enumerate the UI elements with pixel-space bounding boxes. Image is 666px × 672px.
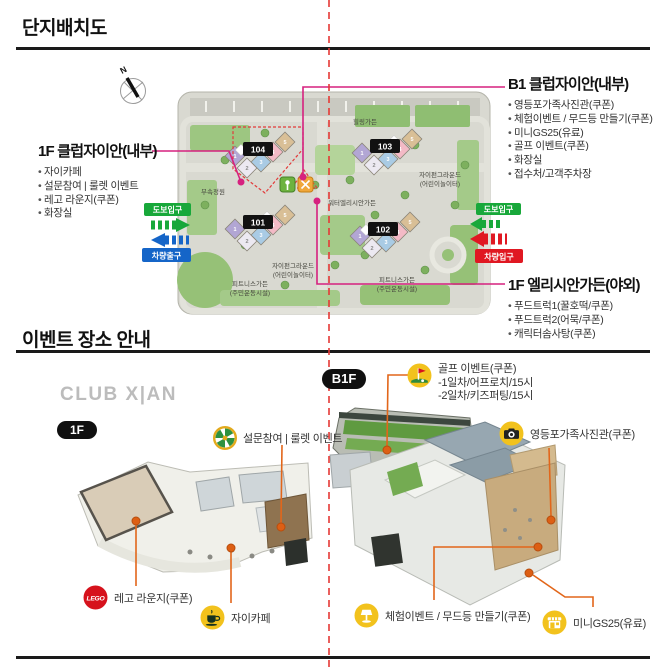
list-item: 화장실 [38,207,157,221]
golf-event-detail-2: -2일차/키즈퍼팅/15시 [438,390,533,404]
callout-1f-elysian-garden: 1F 엘리시안가든(야외) 푸드트럭1(꿀호떡/쿠폰) 푸드트럭2(어묵/쿠폰)… [508,274,640,341]
mini-store-callout: 미니GS25(유료) [542,610,646,635]
roulette-icon [213,426,237,450]
magenta-callout-lines [152,87,505,284]
callout-title: 1F 클럽자이안(내부) [38,140,157,161]
svg-text:도보입구: 도보입구 [153,205,183,215]
callout-title: 1F 엘리시안가든(야외) [508,274,640,295]
roulette-event-label: 설문참여 | 룰렛 이벤트 [243,430,342,446]
car-arrow-left-icon [151,233,189,247]
roulette-event-callout: 설문참여 | 룰렛 이벤트 [213,426,342,450]
list-item: 체험이벤트 / 무드등 만들기(쿠폰) [508,113,653,127]
list-item: 설문참여 | 룰렛 이벤트 [38,180,157,194]
golf-event-label: 골프 이벤트(쿠폰) [438,363,533,377]
walk-arrow-right-icon [151,218,190,232]
cafe-callout: 자이카페 [200,605,270,630]
svg-text:N: N [118,64,128,76]
right-walk-entrance-badge: 도보입구 [476,203,521,215]
compass-icon: N [118,64,145,103]
floor-badge-b1f: B1F [322,369,366,389]
lamp-icon [354,603,379,628]
list-item: 미니GS25(유료) [508,127,653,141]
event-guide-title: 이벤트 장소 안내 [22,325,150,352]
left-car-exit-badge: 차량출구 [142,248,191,262]
bottom-rule [16,656,650,659]
lego-lounge-callout: LEGO 레고 라운지(쿠폰) [83,585,192,610]
list-item: 푸드트럭2(어묵/쿠폰) [508,314,640,328]
list-item: 영등포가족사진관(쿠폰) [508,99,653,113]
golf-icon [407,363,432,388]
list-item: 레고 라운지(쿠폰) [38,194,157,208]
svg-text:LEGO: LEGO [87,595,106,602]
camera-icon [499,421,524,446]
svg-text:도보입구: 도보입구 [484,204,514,214]
list-item: 접수처/고객주차장 [508,168,653,182]
coffee-cup-icon [200,605,225,630]
walk-arrow-left-icon [470,217,501,231]
brochure-page: { "sections": { "site_plan_title": "단지배치… [0,0,666,672]
floor-plan-1f [40,430,325,645]
list-item: 푸드트럭1(꿀호떡/쿠폰) [508,300,640,314]
golf-event-detail-1: -1일차/어프로치/15시 [438,377,533,391]
mood-lamp-label: 체험이벤트 / 무드등 만들기(쿠폰) [385,608,530,624]
callout-b1-club-xian: B1 클럽자이안(내부) 영등포가족사진관(쿠폰) 체험이벤트 / 무드등 만들… [508,73,653,182]
svg-text:차량출구: 차량출구 [152,251,182,261]
list-item: 캐릭터솜사탕(쿠폰) [508,328,640,342]
list-item: 골프 이벤트(쿠폰) [508,140,653,154]
list-item: 화장실 [508,154,653,168]
right-car-entry-badge: 차량입구 [475,249,523,263]
callout-1f-club-xian: 1F 클럽자이안(내부) 자이카페 설문참여 | 룰렛 이벤트 레고 라운지(쿠… [38,140,157,221]
photo-studio-callout: 영등포가족사진관(쿠폰) [499,421,635,446]
lego-icon: LEGO [83,585,108,610]
site-plan-title: 단지배치도 [22,13,107,40]
mini-store-label: 미니GS25(유료) [573,615,646,631]
svg-text:차량입구: 차량입구 [484,252,514,262]
floor-badge-1f: 1F [57,421,97,439]
list-item: 자이카페 [38,166,157,180]
callout-title: B1 클럽자이안(내부) [508,73,653,94]
convenience-store-icon [542,610,567,635]
golf-event-callout: 골프 이벤트(쿠폰) -1일차/어프로치/15시 -2일차/키즈퍼팅/15시 [407,363,533,404]
club-xian-logo: CLUB X|AN [60,384,177,406]
event-guide-rule [16,350,650,353]
cafe-label: 자이카페 [231,610,270,626]
mood-lamp-callout: 체험이벤트 / 무드등 만들기(쿠폰) [354,603,530,628]
lego-lounge-label: 레고 라운지(쿠폰) [114,590,192,606]
car-arrow-left-red-icon [470,231,507,247]
photo-studio-label: 영등포가족사진관(쿠폰) [530,426,635,442]
wood-floor-zone [485,463,558,570]
